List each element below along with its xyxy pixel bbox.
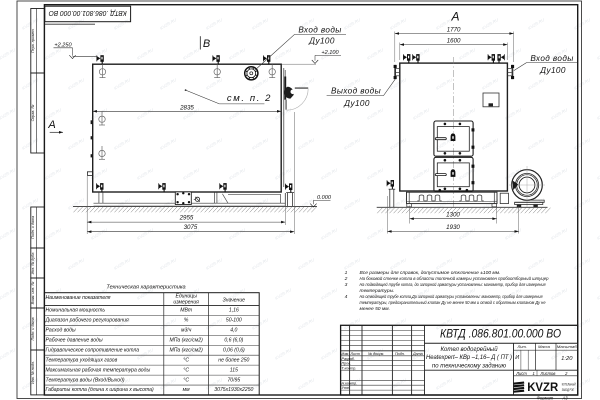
svg-text:Перв. примен.: Перв. примен. [31,28,35,53]
svg-text:И: И [515,355,519,361]
svg-text:50-100: 50-100 [226,318,242,324]
svg-text:115: 115 [230,367,238,373]
svg-text:1: 1 [345,270,348,276]
svg-text:Лит.: Лит. [517,344,527,349]
svg-text:Разраб.: Разраб. [342,357,355,361]
svg-text:0,6 (6,0): 0,6 (6,0) [224,337,243,343]
svg-text:1:20: 1:20 [561,356,573,362]
svg-text:°С: °С [183,377,189,383]
svg-text:Вход воды: Вход воды [530,54,573,63]
svg-text:Габариты котла (длина х ширина: Габариты котла (длина х ширина х высота) [46,387,154,393]
svg-text:0,06 (0,6): 0,06 (0,6) [223,347,245,353]
svg-text:Ду100: Ду100 [539,66,566,75]
svg-text:°С: °С [183,357,189,363]
svg-text:70/95: 70/95 [227,377,240,383]
svg-text:+2.250: +2.250 [54,42,72,48]
svg-text:по техническому заданию: по техническому заданию [432,364,507,370]
svg-text:3: 3 [345,282,348,288]
svg-text:Номинальная мощность: Номинальная мощность [46,308,106,314]
svg-text:не более 250: не более 250 [218,357,249,363]
svg-text:мм: мм [183,387,190,393]
svg-text:см. п. 2: см. п. 2 [227,93,272,104]
svg-text:ЗАВОД РЭП: ЗАВОД РЭП [562,387,575,392]
svg-text:Диапазон рабочего регулировани: Диапазон рабочего регулирования [45,318,129,324]
svg-text:1: 1 [533,371,535,376]
svg-text:2: 2 [344,276,348,282]
svg-text:Инв. № подл.: Инв. № подл. [31,361,35,384]
svg-text:Температура уходящих газов: Температура уходящих газов [46,357,118,363]
svg-text:KVZR: KVZR [527,380,558,394]
svg-text:А3: А3 [561,395,568,400]
svg-text:Масса: Масса [538,344,551,349]
svg-text:Вход воды: Вход воды [298,26,341,35]
svg-text:4,0: 4,0 [230,327,237,333]
svg-text:3075: 3075 [184,224,198,231]
svg-text:°С: °С [183,367,189,373]
svg-text:Листов: Листов [540,371,557,376]
svg-text:Подп. и дата: Подп. и дата [31,216,35,239]
svg-text:Техническая характеристика: Техническая характеристика [106,284,185,290]
svg-text:измерения: измерения [173,299,199,305]
svg-text:Значение: Значение [223,297,246,303]
svg-text:Температура воды (Вход/Выход): Температура воды (Вход/Выход) [46,377,125,383]
svg-text:Котел водогрейный: Котел водогрейный [440,346,498,353]
svg-text:Подп.: Подп. [395,352,405,356]
svg-text:4: 4 [345,294,348,300]
svg-text:Ду100: Ду100 [308,37,335,46]
svg-text:Максимальная рабочая температу: Максимальная рабочая температура воды [46,367,151,373]
svg-text:температуры, предохранительный: температуры, предохранительный клапан Ду… [360,299,546,306]
svg-text:Лист: Лист [515,371,527,376]
svg-text:Инв. № дубл.: Инв. № дубл. [31,252,35,275]
svg-text:температуры.: температуры. [360,289,395,294]
svg-text:%: % [184,318,189,324]
svg-text:Н.контр.: Н.контр. [342,381,358,385]
svg-text:На боковой стенке котла в обла: На боковой стенке котла в области топочн… [360,275,549,282]
svg-text:МВт: МВт [180,308,192,314]
svg-text:А: А [450,10,459,24]
svg-text:В: В [203,38,210,50]
svg-text:2955: 2955 [179,215,194,222]
svg-text:1,16: 1,16 [229,308,239,314]
svg-text:Т.контр.: Т.контр. [342,367,357,371]
svg-text:КВТД .086.801.00.000 ВО: КВТД .086.801.00.000 ВО [440,326,561,340]
svg-text:1600: 1600 [447,38,461,45]
svg-text:2835: 2835 [179,104,194,111]
svg-text:Справ. №: Справ. № [31,105,35,122]
svg-text:Heatexpert– КВр –1,16– Д ( ПТ: Heatexpert– КВр –1,16– Д ( ПТ ) [426,355,512,361]
svg-text:А: А [47,119,55,131]
svg-text:Масштаб: Масштаб [557,344,578,349]
svg-text:МПа (кгс/см2): МПа (кгс/см2) [170,337,204,343]
svg-text:Лист: Лист [350,352,361,356]
svg-text:На отводящей трубе котла,До за: На отводящей трубе котла,До запорной арм… [360,293,543,300]
svg-text:На подводящей трубе котла, до: На подводящей трубе котла, до запорной а… [360,281,546,288]
svg-text:№ докум.: № докум. [368,352,384,356]
svg-text:Пров.: Пров. [342,362,352,366]
svg-text:Расход воды: Расход воды [46,327,76,333]
svg-text:Формат: Формат [537,395,554,400]
svg-text:Утв.: Утв. [342,386,350,390]
svg-text:0.000: 0.000 [317,195,332,201]
svg-text:менее 50 мм.: менее 50 мм. [360,306,390,312]
svg-text:Ду100: Ду100 [343,99,370,108]
svg-text:1770: 1770 [447,26,461,33]
svg-text:м3/ч: м3/ч [181,327,192,333]
svg-text:Взам. инв. №: Взам. инв. № [31,282,35,305]
svg-text:1930: 1930 [446,224,460,231]
svg-text:МПа (кгс/см2): МПа (кгс/см2) [170,347,204,353]
svg-text:Наименование показателя: Наименование показателя [46,295,111,301]
svg-text:Гидравлическое сопротивление к: Гидравлическое сопротивление котла [46,347,140,353]
svg-text:Все размеры для справок, допус: Все размеры для справок, допустимое откл… [360,270,501,276]
svg-text:1300: 1300 [446,211,460,218]
svg-text:Выход воды: Выход воды [331,86,381,95]
svg-text:Рабочее давление воды: Рабочее давление воды [46,337,103,343]
svg-text:3075х1930х2250: 3075х1930х2250 [214,387,253,393]
svg-text:+2.100: +2.100 [321,50,339,56]
svg-text:КВТД .086.801.00.000 ВО: КВТД .086.801.00.000 ВО [48,9,126,18]
svg-text:Подп. и дата: Подп. и дата [31,317,35,340]
svg-text:Дата: Дата [412,352,423,356]
svg-text:Изм.: Изм. [342,352,350,356]
